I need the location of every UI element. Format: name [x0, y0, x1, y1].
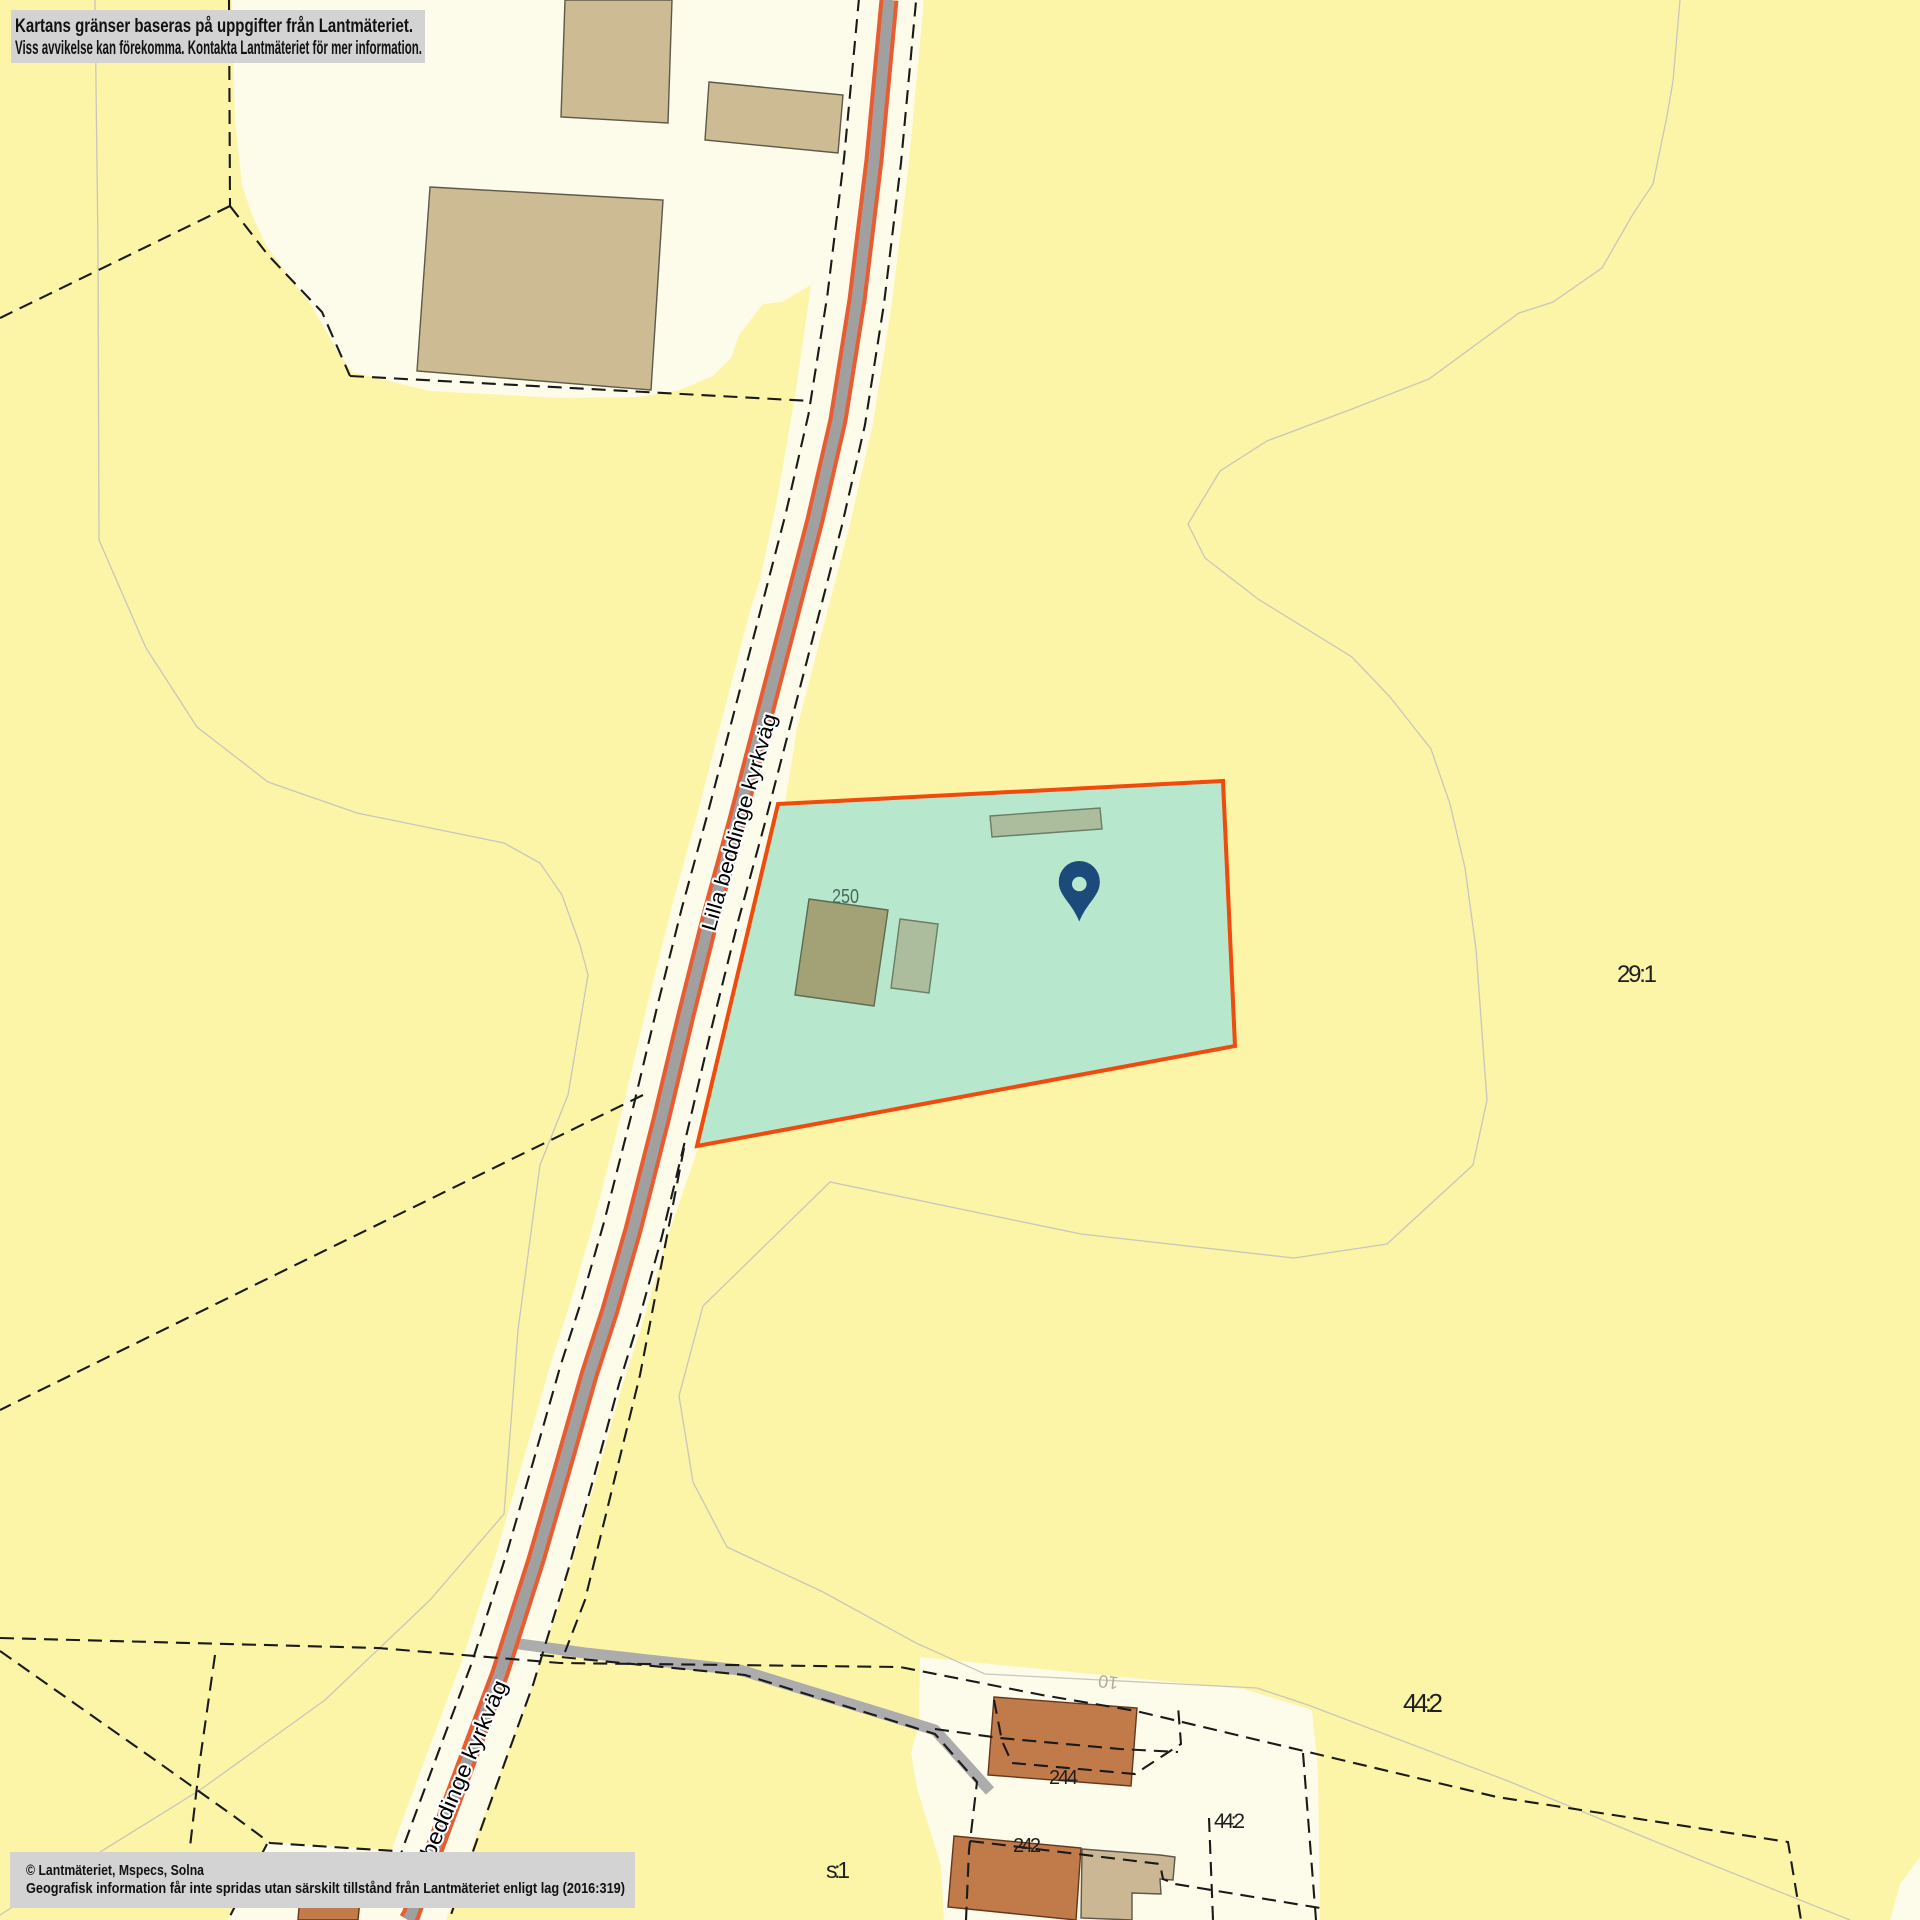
svg-text:Kartans gränser baseras på upp: Kartans gränser baseras på uppgifter frå…	[15, 16, 413, 37]
svg-text:244: 244	[1049, 1767, 1078, 1789]
svg-text:10: 10	[1097, 1671, 1119, 1693]
svg-text:s:1: s:1	[826, 1857, 850, 1883]
svg-text:© Lantmäteriet, Mspecs, Solna: © Lantmäteriet, Mspecs, Solna	[26, 1862, 205, 1879]
svg-text:250: 250	[832, 886, 859, 908]
svg-text:29:1: 29:1	[1617, 961, 1657, 988]
svg-text:Geografisk information får int: Geografisk information får inte spridas …	[26, 1880, 625, 1897]
svg-text:Viss avvikelse kan förekomma.: Viss avvikelse kan förekomma. Kontakta L…	[15, 38, 422, 59]
svg-text:44:2: 44:2	[1214, 1810, 1245, 1833]
svg-text:242: 242	[1013, 1835, 1041, 1857]
svg-text:44:2: 44:2	[1403, 1688, 1443, 1718]
